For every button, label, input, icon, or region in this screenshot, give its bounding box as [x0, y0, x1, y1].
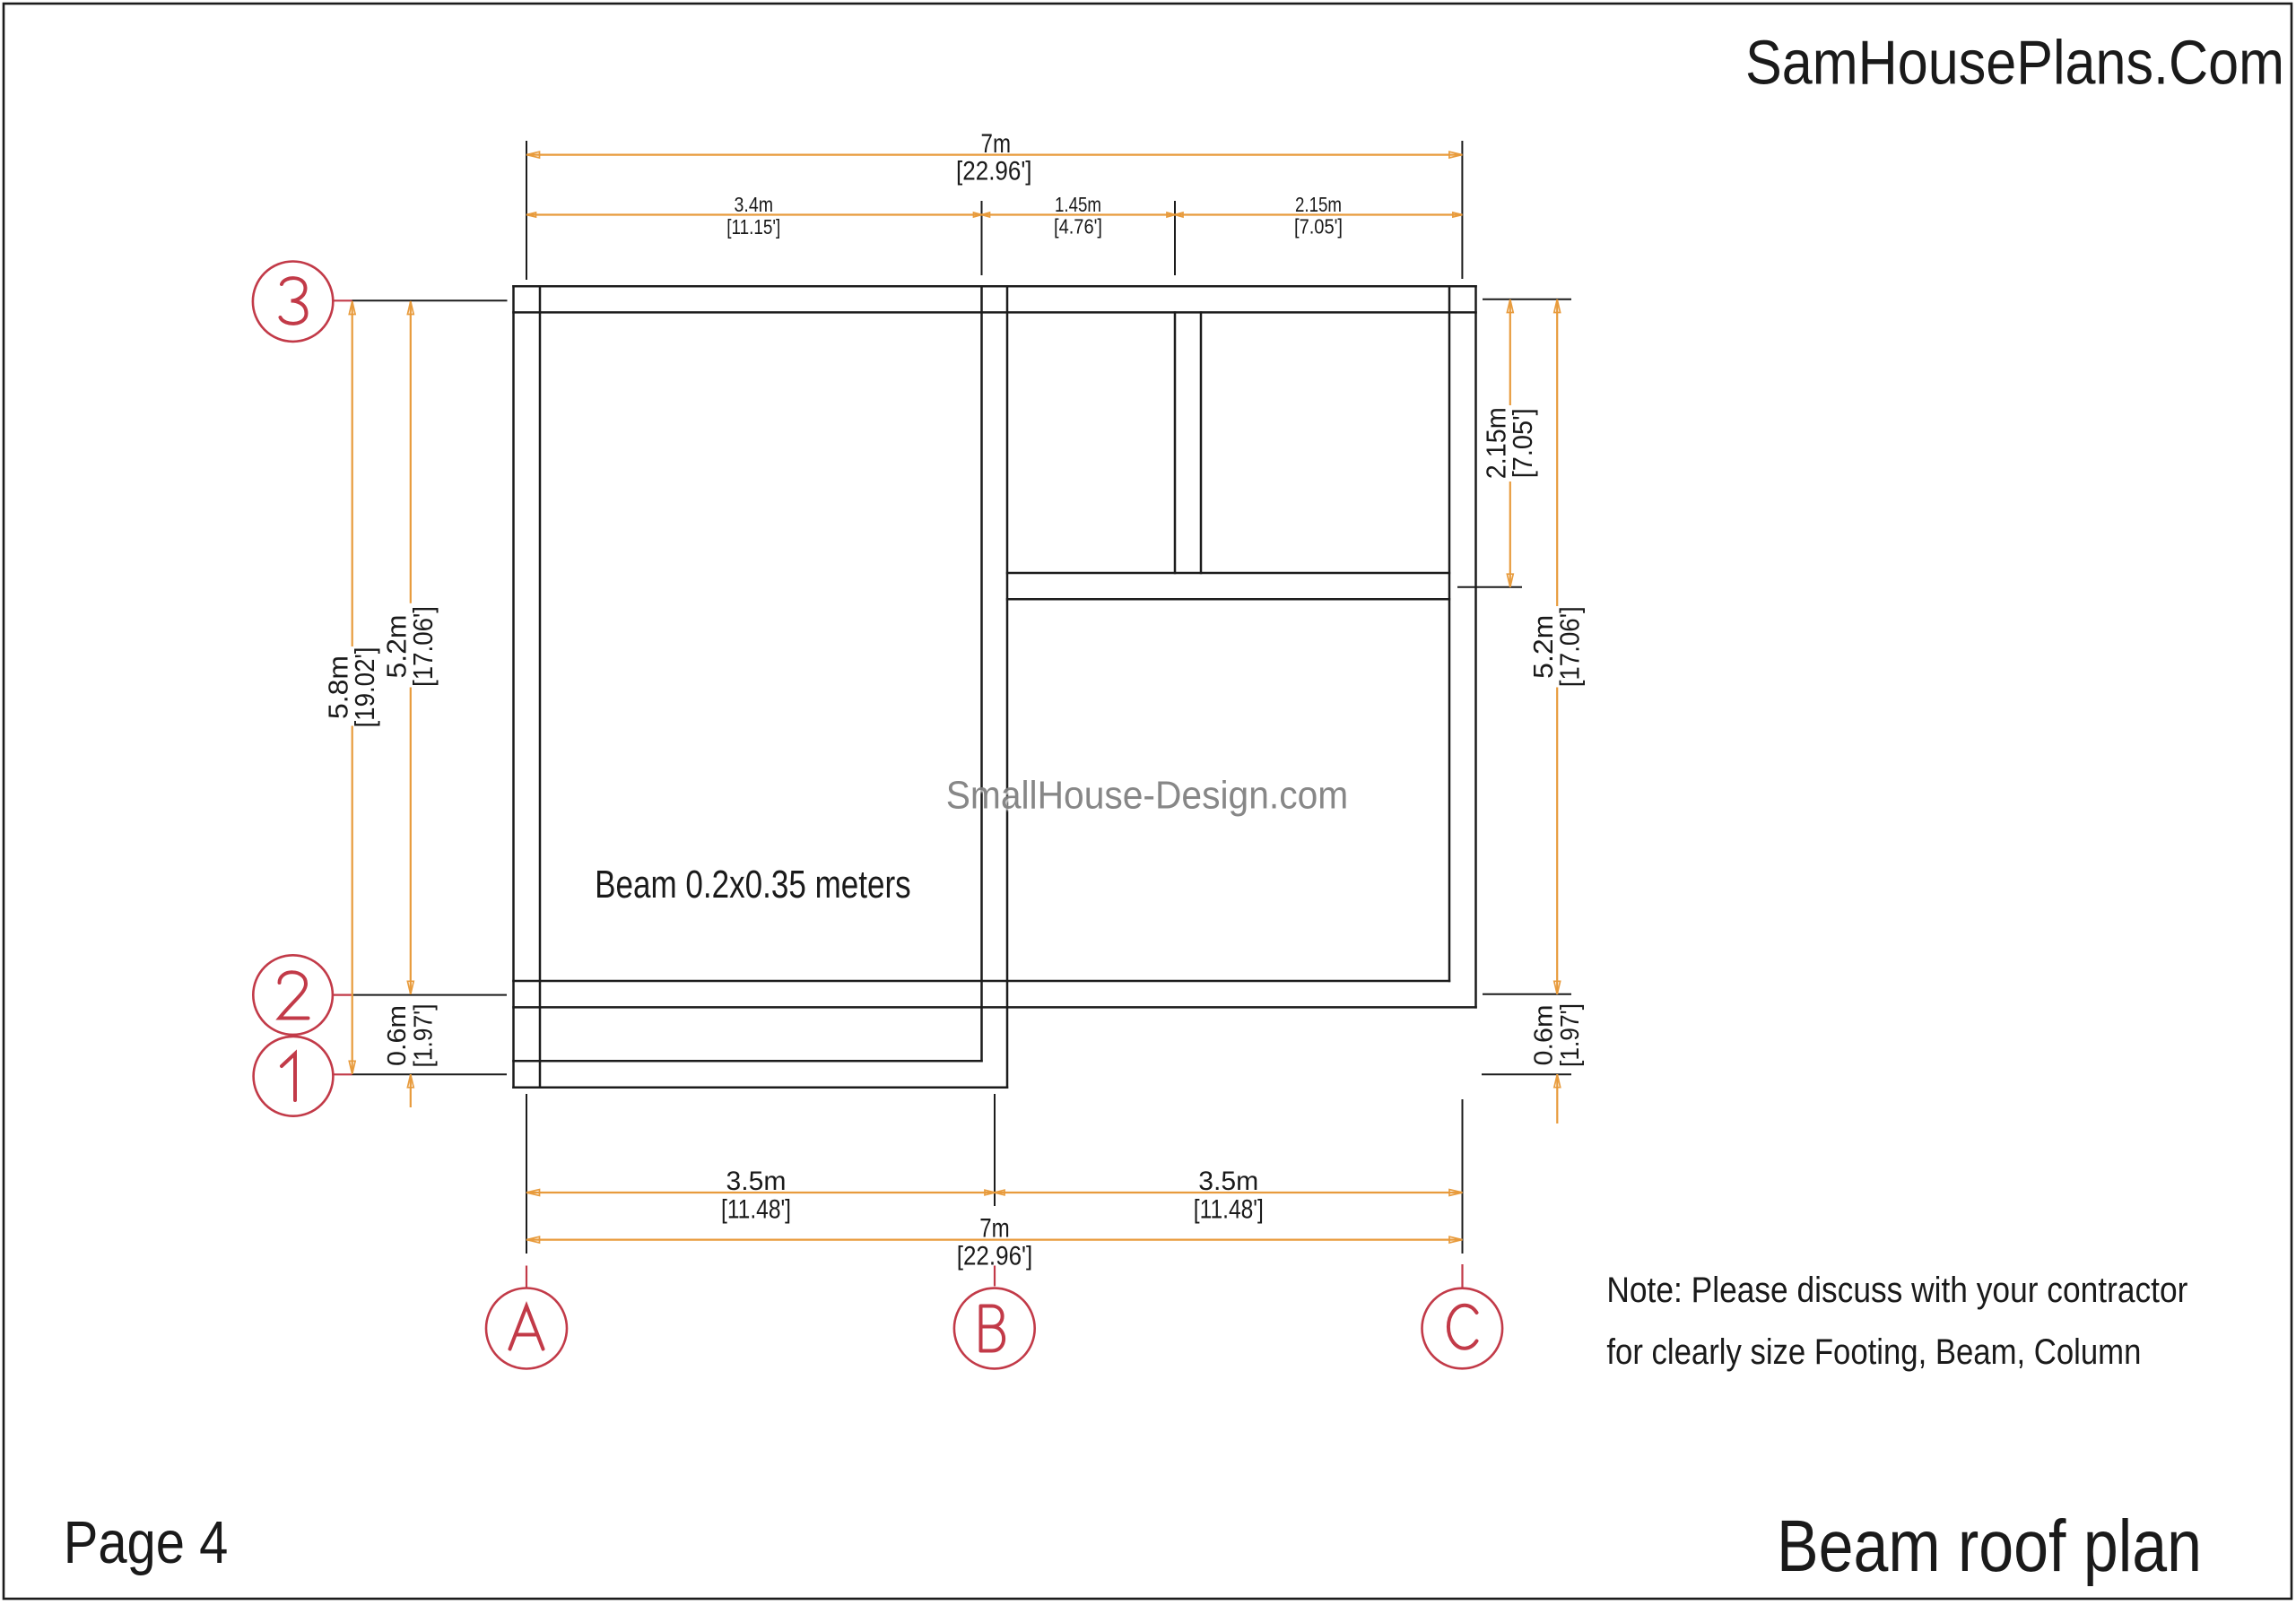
svg-text:[11.48']: [11.48']: [1194, 1195, 1264, 1225]
svg-text:Note: Please discuss with your: Note: Please discuss with your contracto…: [1606, 1271, 2187, 1310]
svg-text:[7.05']: [7.05']: [1294, 215, 1343, 239]
svg-text:[7.05']: [7.05']: [1507, 408, 1538, 478]
svg-text:[11.48']: [11.48']: [721, 1195, 791, 1225]
svg-text:1.45m: 1.45m: [1055, 193, 1101, 216]
svg-text:[1.97']: [1.97']: [409, 1004, 438, 1068]
svg-text:[17.06']: [17.06']: [1553, 606, 1585, 687]
svg-text:[22.96']: [22.96']: [957, 1242, 1033, 1271]
svg-text:for clearly size Footing, Beam: for clearly size Footing, Beam, Column: [1606, 1332, 2141, 1372]
svg-text:0.6m: 0.6m: [1529, 1005, 1558, 1066]
svg-text:[22.96']: [22.96']: [956, 157, 1032, 187]
svg-text:0.6m: 0.6m: [383, 1005, 412, 1066]
svg-text:7m: 7m: [979, 1214, 1010, 1244]
svg-text:[11.15']: [11.15']: [726, 215, 780, 239]
svg-text:Beam 0.2x0.35 meters: Beam 0.2x0.35 meters: [595, 863, 911, 907]
svg-text:2.15m: 2.15m: [1295, 193, 1342, 216]
svg-text:[4.76']: [4.76']: [1054, 215, 1102, 239]
svg-text:SamHousePlans.Com: SamHousePlans.Com: [1745, 27, 2284, 97]
svg-text:3.5m: 3.5m: [726, 1167, 787, 1196]
svg-text:[19.02']: [19.02']: [349, 647, 380, 728]
svg-text:3.5m: 3.5m: [1198, 1167, 1258, 1196]
svg-text:[1.97']: [1.97']: [1556, 1003, 1585, 1067]
svg-text:SmallHouse-Design.com: SmallHouse-Design.com: [946, 773, 1349, 817]
svg-text:Beam roof plan: Beam roof plan: [1777, 1505, 2202, 1587]
svg-text:3.4m: 3.4m: [735, 193, 774, 216]
svg-text:7m: 7m: [981, 129, 1012, 159]
svg-text:[17.06']: [17.06']: [407, 606, 439, 687]
svg-text:Page 4: Page 4: [64, 1509, 229, 1576]
